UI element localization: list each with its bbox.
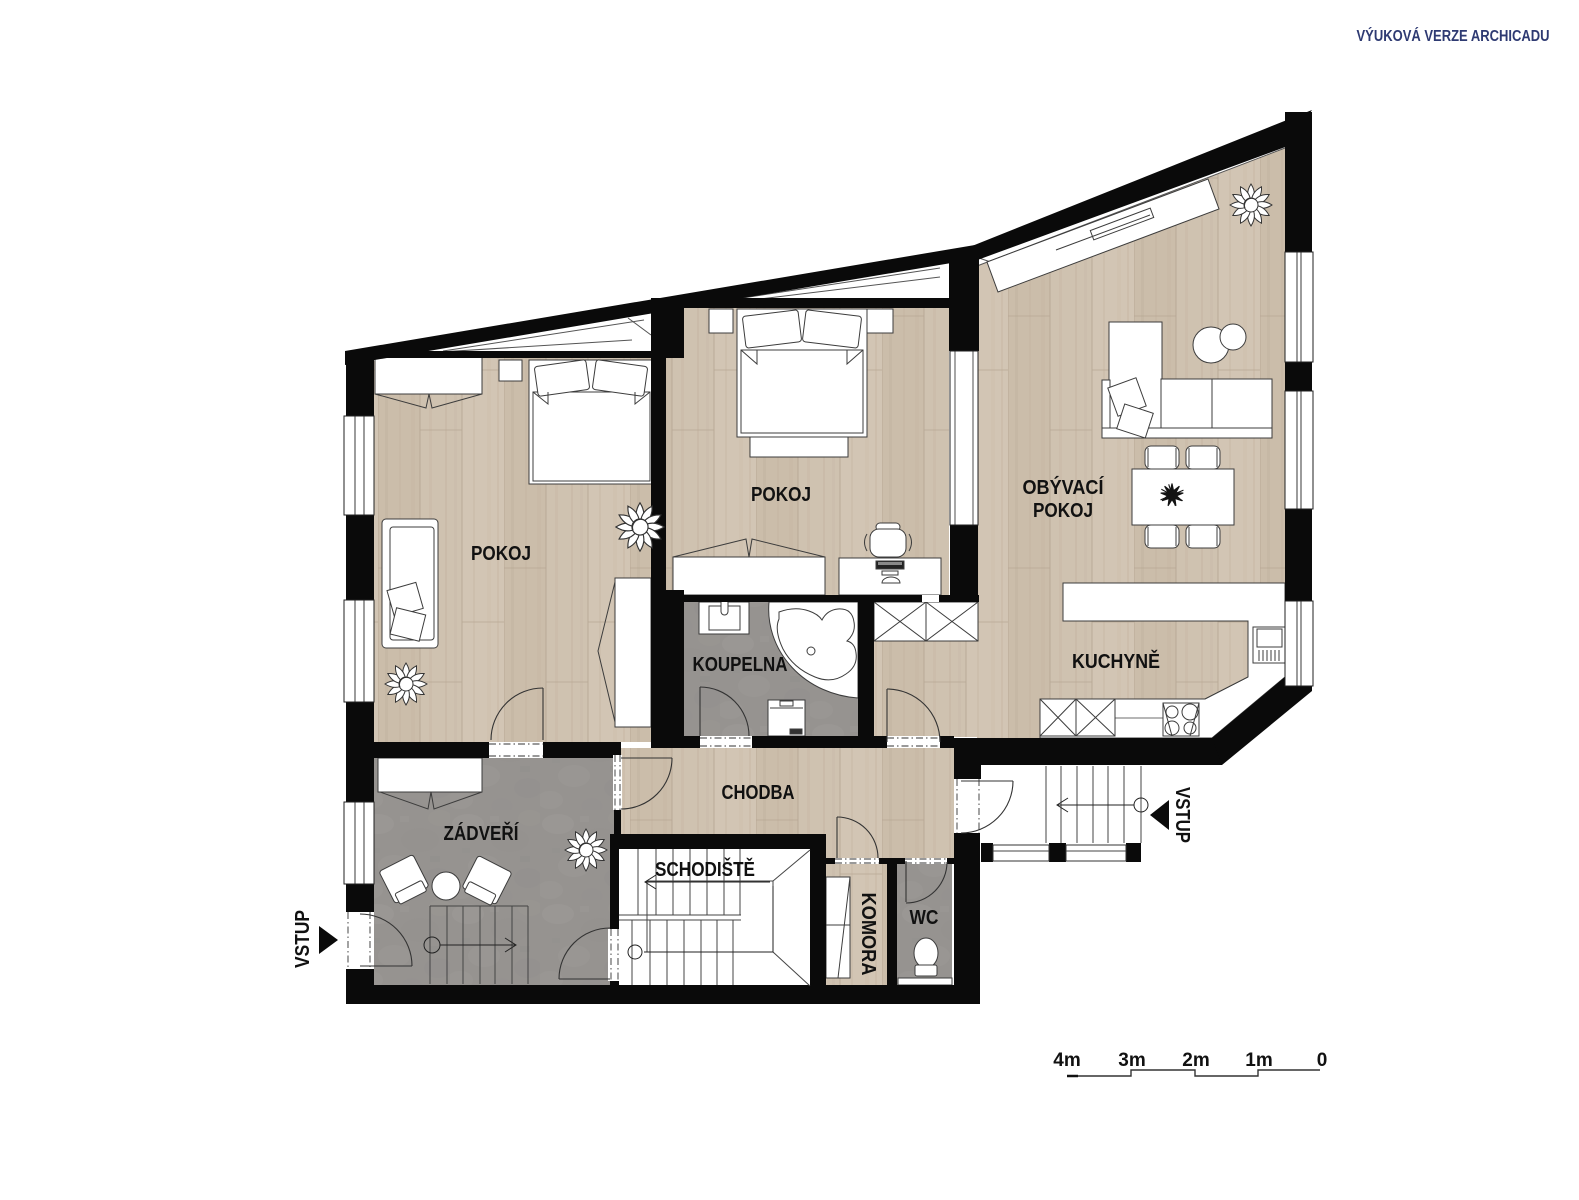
svg-text:KUCHYNĚ: KUCHYNĚ <box>1072 649 1160 673</box>
svg-text:POKOJ: POKOJ <box>1033 500 1093 522</box>
svg-text:4m: 4m <box>1053 1050 1080 1071</box>
svg-text:SCHODIŠTĚ: SCHODIŠTĚ <box>655 857 755 881</box>
svg-text:3m: 3m <box>1118 1050 1145 1071</box>
svg-text:2m: 2m <box>1182 1050 1209 1071</box>
svg-text:0: 0 <box>1317 1050 1328 1071</box>
svg-text:POKOJ: POKOJ <box>471 543 531 565</box>
svg-text:KOUPELNA: KOUPELNA <box>693 654 788 676</box>
svg-text:ZÁDVEŘÍ: ZÁDVEŘÍ <box>444 821 519 845</box>
svg-text:KOMORA: KOMORA <box>857 893 879 976</box>
svg-text:VSTUP: VSTUP <box>292 910 314 968</box>
svg-text:VSTUP: VSTUP <box>1171 787 1193 843</box>
svg-text:OBÝVACÍ: OBÝVACÍ <box>1023 475 1104 499</box>
svg-text:1m: 1m <box>1245 1050 1272 1071</box>
svg-text:POKOJ: POKOJ <box>751 484 811 506</box>
svg-text:WC: WC <box>910 907 939 929</box>
svg-text:CHODBA: CHODBA <box>722 782 795 804</box>
svg-text:VÝUKOVÁ VERZE ARCHICADU: VÝUKOVÁ VERZE ARCHICADU <box>1357 26 1550 45</box>
